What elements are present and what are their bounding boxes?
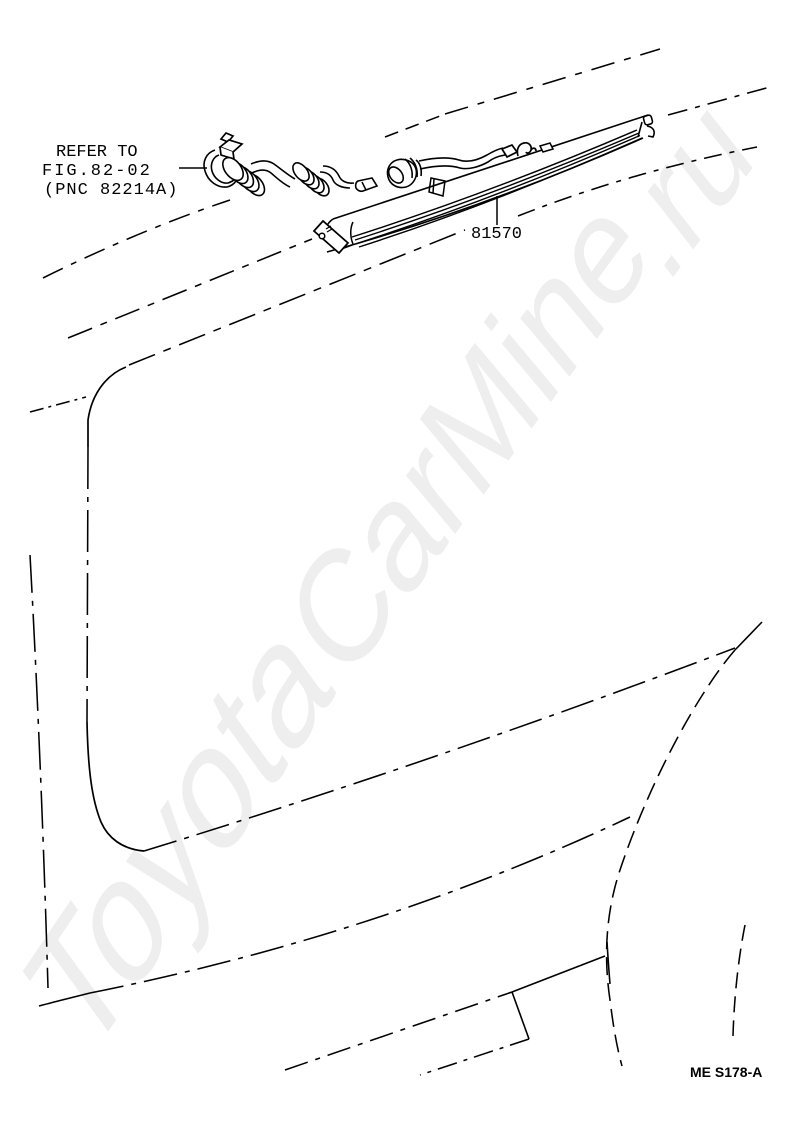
svg-text:Toyota: Toyota (1, 575, 358, 1093)
svg-text:81570: 81570 (471, 225, 522, 244)
svg-text:(PNC 82214A): (PNC 82214A) (44, 181, 178, 200)
svg-text:ME S178-A: ME S178-A (690, 1064, 762, 1080)
svg-text:CarMine: CarMine (261, 159, 676, 711)
svg-text:FIG.82-02: FIG.82-02 (42, 162, 152, 181)
svg-text:REFER TO: REFER TO (56, 143, 138, 162)
